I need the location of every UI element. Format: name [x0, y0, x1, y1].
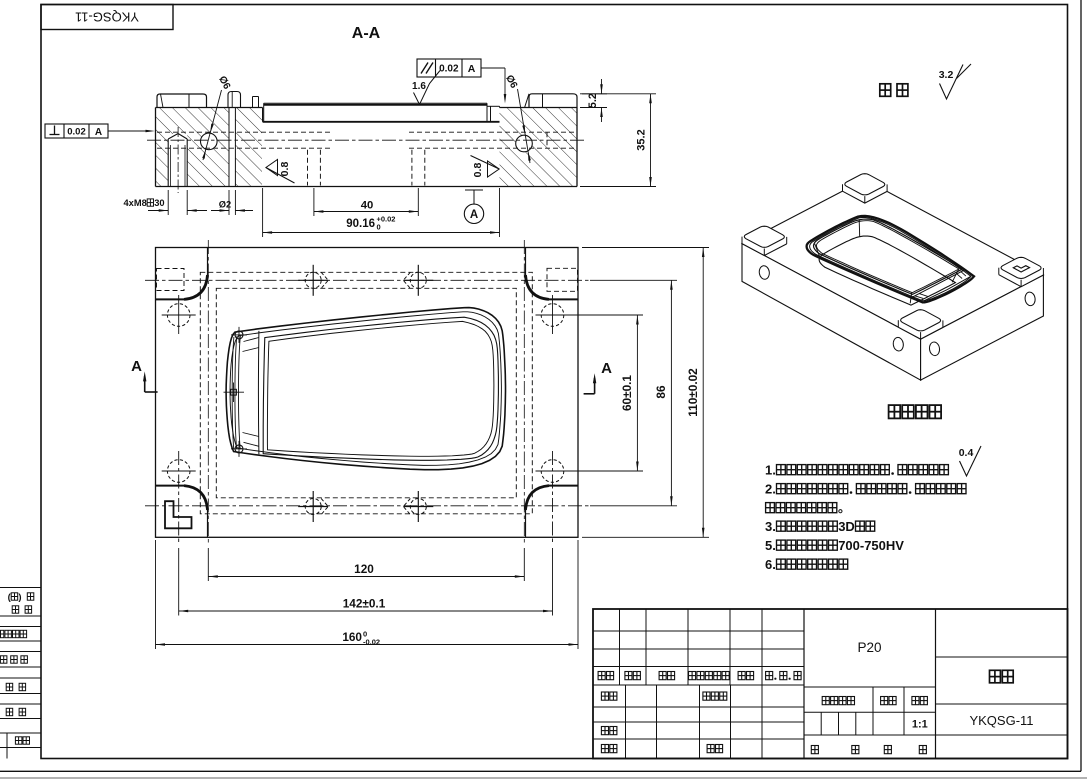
svg-text:1.: 1.	[765, 463, 776, 478]
svg-text:A-A: A-A	[352, 25, 381, 42]
svg-text:0.4: 0.4	[959, 447, 974, 459]
svg-text:160: 160	[342, 630, 362, 644]
svg-text:P20: P20	[857, 640, 881, 655]
svg-text:0: 0	[377, 223, 381, 232]
svg-text:4xM8: 4xM8	[124, 198, 147, 208]
svg-text:1:1: 1:1	[912, 719, 928, 731]
svg-text:0.02: 0.02	[439, 64, 459, 75]
svg-text:3.: 3.	[765, 519, 776, 534]
svg-text:YKQSG-11: YKQSG-11	[969, 713, 1033, 728]
svg-text:0.8: 0.8	[472, 163, 484, 178]
svg-text:142±0.1: 142±0.1	[343, 597, 386, 611]
svg-text:40: 40	[361, 200, 374, 212]
svg-text:-0.02: -0.02	[363, 638, 380, 647]
svg-text:90.16: 90.16	[346, 218, 375, 230]
svg-text:30: 30	[154, 198, 164, 208]
svg-text:1.6: 1.6	[412, 81, 426, 92]
svg-text:5.2: 5.2	[587, 93, 599, 108]
svg-text:0.8: 0.8	[279, 162, 291, 177]
svg-text:3D: 3D	[838, 519, 855, 534]
svg-text:A: A	[131, 358, 142, 375]
svg-text:): )	[18, 592, 21, 603]
svg-text:6.: 6.	[765, 557, 776, 572]
svg-text:86: 86	[654, 385, 668, 399]
svg-text:A: A	[470, 209, 478, 221]
svg-text:60±0.1: 60±0.1	[620, 375, 634, 411]
svg-text:35.2: 35.2	[636, 129, 648, 150]
svg-text:A: A	[601, 360, 612, 377]
svg-text:3.2: 3.2	[939, 69, 954, 81]
svg-text:YKQSG-11: YKQSG-11	[75, 10, 139, 25]
svg-text:A: A	[468, 63, 476, 75]
svg-text:700-750HV: 700-750HV	[838, 538, 904, 553]
svg-text:2.: 2.	[765, 482, 776, 497]
svg-text:5.: 5.	[765, 538, 776, 553]
svg-text:120: 120	[354, 562, 374, 576]
svg-text:A: A	[95, 127, 102, 138]
svg-text:0.02: 0.02	[67, 127, 86, 138]
svg-text:110±0.02: 110±0.02	[686, 368, 700, 417]
svg-text:Ø2: Ø2	[219, 200, 231, 210]
